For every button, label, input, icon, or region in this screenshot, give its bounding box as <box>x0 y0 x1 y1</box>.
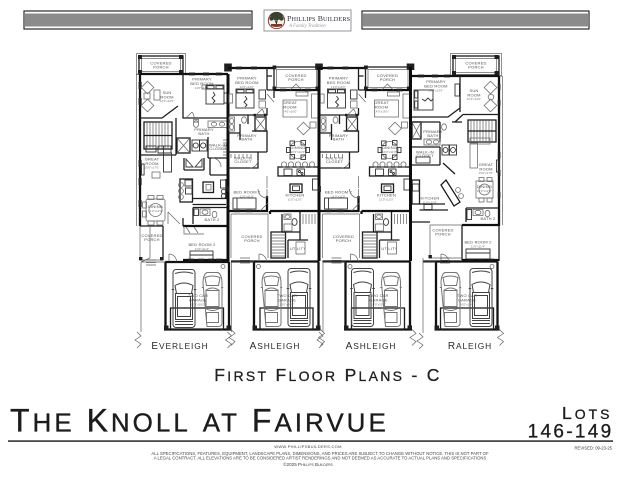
svg-text:A Family Tradition: A Family Tradition <box>288 24 326 29</box>
svg-text:14'0"x13'0": 14'0"x13'0" <box>429 89 444 93</box>
svg-text:BATH: BATH <box>427 133 438 138</box>
svg-text:12'0"x14'0": 12'0"x14'0" <box>240 85 255 89</box>
svg-text:PORCH: PORCH <box>144 237 159 242</box>
svg-text:11'0"x11'4": 11'0"x11'4" <box>195 247 209 251</box>
svg-text:PORCH: PORCH <box>153 65 168 70</box>
svg-text:146-149: 146-149 <box>528 422 614 443</box>
svg-text:PORCH: PORCH <box>435 232 450 237</box>
svg-text:THE KNOLL AT FAIRVUE: THE KNOLL AT FAIRVUE <box>10 403 389 439</box>
svg-text:14'0"x16'0": 14'0"x16'0" <box>374 110 389 114</box>
svg-text:EVERLEIGH: EVERLEIGH <box>151 341 208 352</box>
svg-text:15'0"x17'0": 15'0"x17'0" <box>479 171 494 175</box>
svg-text:A LEGAL CONTRACT. ALL ELEVATIO: A LEGAL CONTRACT. ALL ELEVATIONS ARE TO … <box>154 456 487 461</box>
svg-text:PORCH: PORCH <box>288 77 303 82</box>
svg-text:20'0"x20'0": 20'0"x20'0" <box>460 303 475 307</box>
svg-text:ASHLEIGH: ASHLEIGH <box>250 341 301 352</box>
svg-text:11'0"x12'0": 11'0"x12'0" <box>477 189 492 193</box>
svg-text:15'0"x17'0": 15'0"x17'0" <box>145 166 160 170</box>
svg-text:FIRST FLOOR PLANS - C: FIRST FLOOR PLANS - C <box>214 365 441 385</box>
svg-text:11'0"x12'0": 11'0"x12'0" <box>379 198 394 202</box>
svg-text:CLOSET: CLOSET <box>326 159 344 164</box>
svg-text:20'0"x20'0": 20'0"x20'0" <box>371 303 386 307</box>
svg-text:RALEIGH: RALEIGH <box>448 341 492 352</box>
svg-text:CLOSET: CLOSET <box>234 159 252 164</box>
svg-text:REVISED: 09-23-25: REVISED: 09-23-25 <box>575 446 613 451</box>
svg-text:11'0"x11'4": 11'0"x11'4" <box>471 245 485 249</box>
svg-text:BATH 2: BATH 2 <box>205 217 220 222</box>
svg-text:ASHLEIGH: ASHLEIGH <box>346 341 397 352</box>
svg-text:PORCH: PORCH <box>336 238 351 243</box>
svg-text:CLOSET: CLOSET <box>209 146 227 151</box>
svg-text:PORCH: PORCH <box>468 65 483 70</box>
svg-text:11'0"x12'0": 11'0"x12'0" <box>148 209 163 213</box>
svg-text:PORCH: PORCH <box>380 77 395 82</box>
svg-text:BATH: BATH <box>333 137 344 142</box>
svg-text:PHILLIPS BUILDERS: PHILLIPS BUILDERS <box>287 14 351 23</box>
svg-text:12'0"x14'0": 12'0"x14'0" <box>331 85 346 89</box>
svg-text:10'0"x11'0": 10'0"x11'0" <box>291 150 306 154</box>
svg-text:12'4"x13'0": 12'4"x13'0" <box>467 97 482 101</box>
svg-text:14'0"x16'0": 14'0"x16'0" <box>283 110 298 114</box>
svg-text:UTILITY: UTILITY <box>290 246 306 251</box>
svg-text:12'4"x13'0": 12'4"x13'0" <box>160 99 175 103</box>
svg-text:UTILITY: UTILITY <box>381 246 397 251</box>
svg-text:20'0"x20'0": 20'0"x20'0" <box>280 303 295 307</box>
svg-text:11'0"x12'0": 11'0"x12'0" <box>288 198 303 202</box>
svg-text:PORCH: PORCH <box>244 238 259 243</box>
svg-text:BATH: BATH <box>241 137 252 142</box>
svg-text:20'0"x20'0": 20'0"x20'0" <box>191 303 206 307</box>
svg-text:LOTS: LOTS <box>562 403 613 423</box>
svg-text:WWW.PHILLIPSBUILDERS.COM: WWW.PHILLIPSBUILDERS.COM <box>274 444 341 449</box>
svg-text:10'0"x11'0": 10'0"x11'0" <box>382 150 397 154</box>
svg-text:11'0"x12'0": 11'0"x12'0" <box>423 201 438 205</box>
svg-text:BATH: BATH <box>198 131 209 136</box>
